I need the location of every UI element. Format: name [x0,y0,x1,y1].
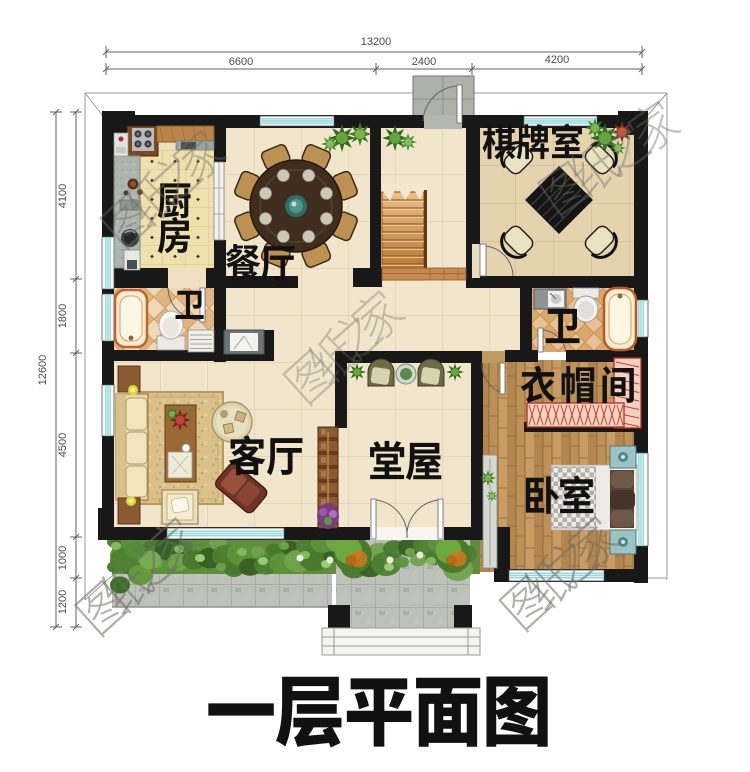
svg-text:4200: 4200 [545,54,569,66]
svg-text:12600: 12600 [37,355,49,386]
svg-text:1000: 1000 [57,546,69,570]
svg-text:4100: 4100 [57,184,69,208]
svg-text:13200: 13200 [361,36,392,48]
svg-text:1200: 1200 [57,590,69,614]
svg-text:2400: 2400 [412,56,436,68]
svg-text:1800: 1800 [57,304,69,328]
svg-text:6600: 6600 [229,56,253,68]
svg-text:4500: 4500 [57,433,69,457]
